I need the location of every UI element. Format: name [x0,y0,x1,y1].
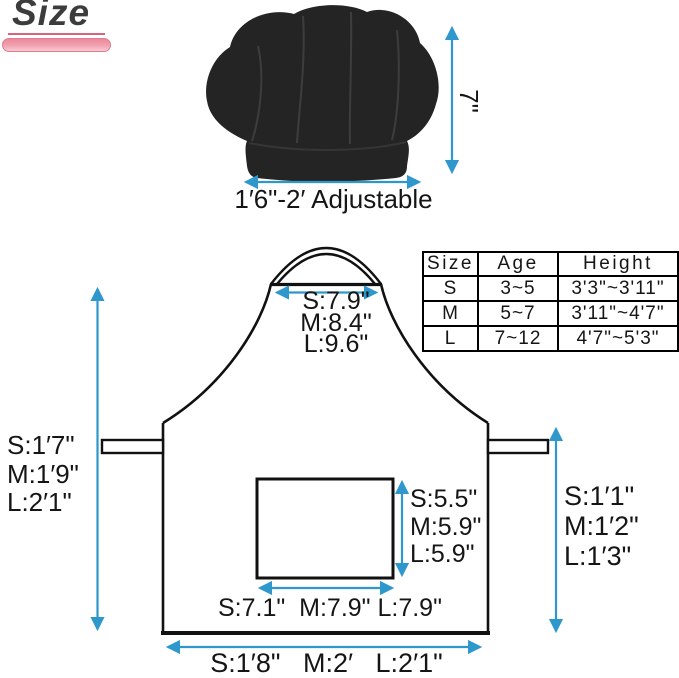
cell-height-s: 3'3"~3'11" [558,276,678,301]
pocket-height-l: L:5.9" [410,541,481,569]
skirt-length-l: L:1′3" [564,541,639,571]
table-header-row: Size Age Height [423,252,678,276]
total-length-m: M:1′9" [7,460,79,489]
apron-bib-left [163,284,271,423]
pocket-height-m: M:5.9" [410,514,481,542]
pocket-width-label: S:7.1" M:7.9" L:7.9" [218,594,438,623]
cell-size-s: S [423,276,478,301]
pocket-height-label: S:5.5" M:5.9" L:5.9" [410,486,481,569]
waist-tie-right [488,440,548,453]
table-row: M 5~7 3'11"~4'7" [423,301,678,326]
hat-height-label: 7" [454,84,484,118]
neck-strap-inner [277,254,375,284]
skirt-length-label: S:1′1" M:1′2" L:1′3" [564,481,639,571]
pocket-height-s: S:5.5" [410,486,481,514]
total-length-l: L:2′1" [7,488,79,517]
skirt-length-m: M:1′2" [564,511,639,541]
hat-adjustable-label: 1′6"-2′ Adjustable [232,184,435,215]
neck-width-l: L:9.6" [294,334,378,356]
header-size: Size [423,252,478,276]
total-length-s: S:1′7" [7,431,79,460]
size-chart-table: Size Age Height S 3~5 3'3"~3'11" M 5~7 3… [422,251,679,352]
cell-age-s: 3~5 [478,276,558,301]
apron-pocket [257,479,393,578]
cell-age-m: 5~7 [478,301,558,326]
chef-hat-illustration [206,5,439,182]
table-row: S 3~5 3'3"~3'11" [423,276,678,301]
cell-size-m: M [423,301,478,326]
skirt-length-s: S:1′1" [564,481,639,511]
table-row: L 7~12 4'7"~5'3" [423,326,678,351]
bottom-width-label: S:1′8" M:2′ L:2′1" [179,648,474,678]
neck-width-label: S:7.9" M:8.4" L:9.6" [294,291,378,356]
total-length-label: S:1′7" M:1′9" L:2′1" [7,431,79,517]
cell-age-l: 7~12 [478,326,558,351]
cell-height-l: 4'7"~5'3" [558,326,678,351]
size-chart-image: Size [0,0,679,678]
header-age: Age [478,252,558,276]
waist-tie-left [102,440,163,453]
cell-size-l: L [423,326,478,351]
header-height: Height [558,252,678,276]
cell-height-m: 3'11"~4'7" [558,301,678,326]
